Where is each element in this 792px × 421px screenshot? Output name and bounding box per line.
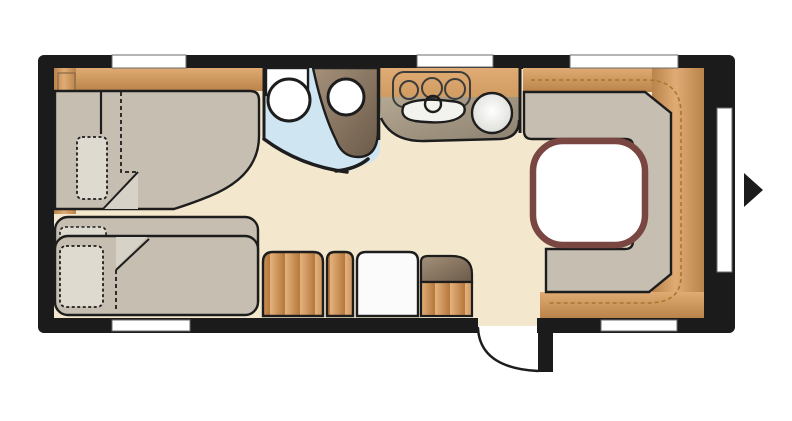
window-top-right <box>570 55 678 68</box>
window-right-side <box>717 108 732 272</box>
overhead-locker-shelf <box>54 68 264 91</box>
sink-bowl <box>472 93 512 133</box>
dinette-table <box>533 141 645 245</box>
window-bottom-right <box>601 320 677 331</box>
cabinet-wood-narrow <box>327 252 353 316</box>
cabinet-white-appliance <box>357 252 418 316</box>
toilet-bowl <box>328 79 364 115</box>
bed-lower-pillow <box>60 246 103 307</box>
base-cabinets <box>263 252 472 316</box>
floorplan-canvas <box>0 0 792 421</box>
entry-door <box>478 315 553 372</box>
cabinet-corner-front <box>421 282 472 316</box>
caravan-floorplan <box>0 0 792 421</box>
door-jamb-post <box>538 318 553 372</box>
cabinet-corner-top <box>421 256 472 282</box>
window-top-left <box>112 55 186 68</box>
entry-arrow-icon <box>744 173 763 207</box>
washbasin <box>268 79 310 121</box>
cabinet-wood-wide <box>263 252 323 316</box>
lounge-backrest-bottom <box>540 292 704 318</box>
kitchen <box>379 68 520 141</box>
door-opening-outside <box>478 326 537 335</box>
window-top-center <box>417 55 493 67</box>
door-opening-floor <box>478 315 537 326</box>
window-bottom-left <box>112 320 190 331</box>
lounge <box>523 68 704 318</box>
bed-upper-pillow <box>77 137 107 199</box>
